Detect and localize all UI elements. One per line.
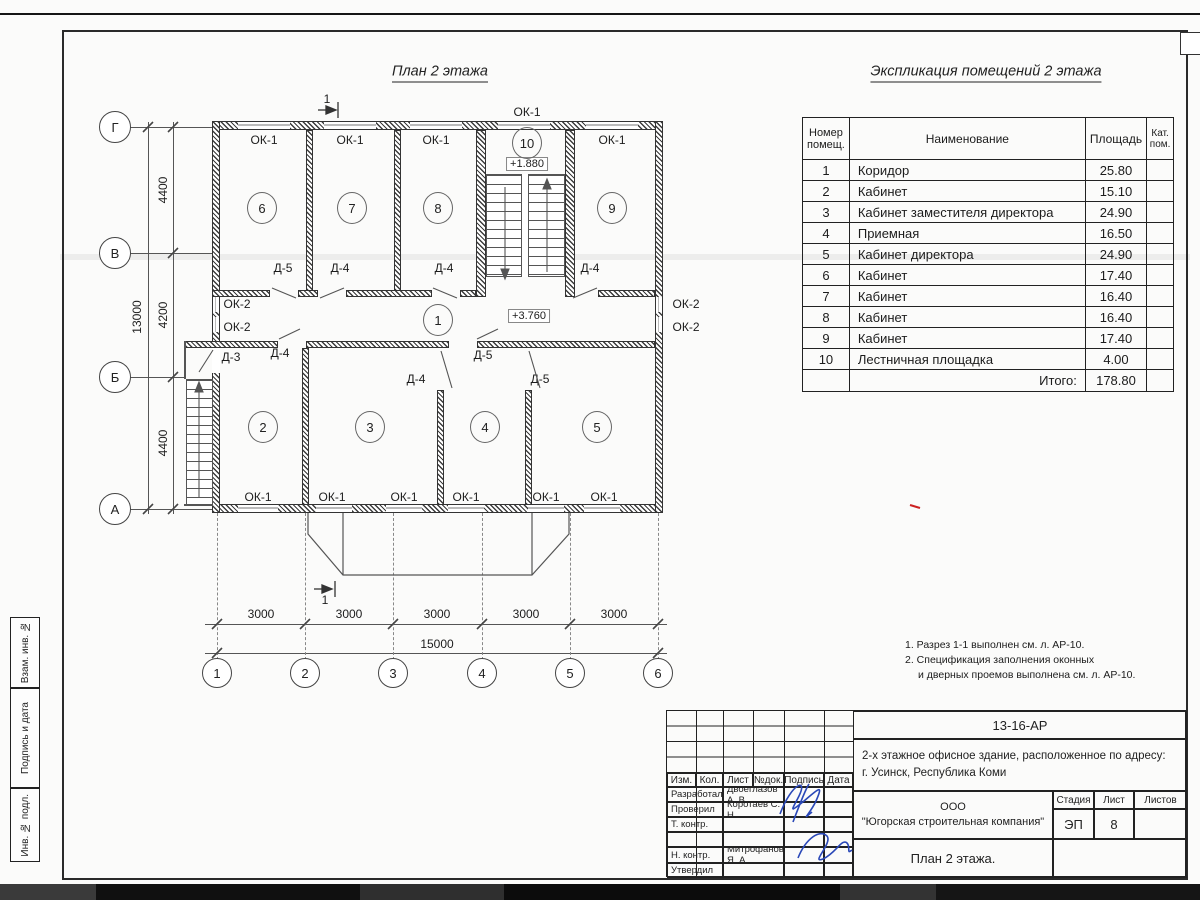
room-number-bubble: 3 bbox=[355, 411, 385, 443]
tb-name: Двоеглазов А. В. bbox=[723, 787, 784, 802]
plan-label: ОК-2 bbox=[224, 297, 251, 311]
tb-description-line1: 2-х этажное офисное здание, расположенно… bbox=[862, 748, 1166, 765]
cell-area: 4.00 bbox=[1085, 349, 1146, 370]
stamp-vzam-inv: Взам. инв. № bbox=[10, 617, 40, 688]
tb-col-data: Дата bbox=[824, 773, 853, 787]
table-row: 3Кабинет заместителя директора24.90 bbox=[803, 202, 1174, 223]
tb-date bbox=[824, 787, 853, 802]
axis-line-1 bbox=[217, 513, 218, 660]
table-row: 1Коридор25.80 bbox=[803, 160, 1174, 181]
tb-stage-value: ЭП bbox=[1053, 809, 1094, 839]
axis-bubble-bottom: 6 bbox=[643, 658, 673, 688]
plan-label: ОК-1 bbox=[245, 490, 272, 504]
drawing-sheet: Взам. инв. № Подпись и дата Инв. № подл.… bbox=[0, 0, 1200, 900]
plan-label: ОК-1 bbox=[533, 490, 560, 504]
plan-label: ОК-1 bbox=[423, 133, 450, 147]
table-row: 2Кабинет15.10 bbox=[803, 181, 1174, 202]
table-row: 8Кабинет16.40 bbox=[803, 307, 1174, 328]
cell-num: 1 bbox=[803, 160, 850, 181]
plan-label: ОК-2 bbox=[673, 297, 700, 311]
cell-area: 25.80 bbox=[1085, 160, 1146, 181]
table-total-row: Итого: 178.80 bbox=[803, 370, 1174, 392]
cell-cat bbox=[1147, 223, 1174, 244]
tb-date bbox=[824, 802, 853, 817]
tb-sign bbox=[784, 802, 824, 817]
total-value: 178.80 bbox=[1085, 370, 1146, 392]
corner-stamp-box bbox=[1180, 32, 1200, 55]
tb-col-izm: Изм. bbox=[667, 773, 696, 787]
tb-description: 2-х этажное офисное здание, расположенно… bbox=[862, 748, 1166, 783]
room-number-bubble: 4 bbox=[470, 411, 500, 443]
axis-bubble-left: А bbox=[99, 493, 131, 525]
tb-name bbox=[723, 817, 784, 832]
cell-name: Кабинет bbox=[849, 307, 1085, 328]
table-row: 4Приемная16.50 bbox=[803, 223, 1174, 244]
tb-role: Н. контр. bbox=[667, 847, 723, 863]
dim-line-bottom-total bbox=[205, 653, 667, 654]
tb-drawing-name: План 2 этажа. bbox=[853, 839, 1053, 878]
tb-doc-code: 13-16-АР bbox=[853, 711, 1187, 739]
note-2: 2. Спецификация заполнения оконных bbox=[905, 653, 1135, 668]
tb-date bbox=[824, 817, 853, 832]
cell-area: 16.40 bbox=[1085, 286, 1146, 307]
cell-cat bbox=[1147, 202, 1174, 223]
tb-company-line1: ООО bbox=[940, 800, 966, 815]
tb-sign bbox=[784, 863, 824, 878]
explication-table: Номер помещ. Наименование Площадь Кат. п… bbox=[802, 117, 1174, 392]
plan-label: Д-4 bbox=[271, 346, 290, 360]
cell-cat bbox=[1147, 286, 1174, 307]
dim-line-bottom-segments bbox=[205, 624, 667, 625]
plan-label: 3000 bbox=[248, 607, 275, 621]
cell-num: 6 bbox=[803, 265, 850, 286]
explication-title: Экспликация помещений 2 этажа bbox=[870, 64, 1101, 83]
tb-col-podpis: Подпись bbox=[784, 773, 824, 787]
cell-name: Кабинет директора bbox=[849, 244, 1085, 265]
plan-label: ОК-1 bbox=[319, 490, 346, 504]
wall-room6-7 bbox=[306, 130, 313, 291]
col-header-area: Площадь bbox=[1085, 118, 1146, 160]
axis-bubble-left: Б bbox=[99, 361, 131, 393]
tb-description-line2: г. Усинск, Республика Коми bbox=[862, 765, 1166, 782]
note-2-cont: и дверных проемов выполнена см. л. АР-10… bbox=[905, 668, 1135, 683]
wall-corridor-north bbox=[298, 290, 318, 297]
cell-cat bbox=[1147, 244, 1174, 265]
cell-area: 16.40 bbox=[1085, 307, 1146, 328]
room-number-bubble: 7 bbox=[337, 192, 367, 224]
tb-name: Коротаев С. Н. bbox=[723, 802, 784, 817]
tb-date bbox=[824, 847, 853, 863]
plan-label: Д-4 bbox=[581, 261, 600, 275]
cell-cat bbox=[1147, 181, 1174, 202]
window-ok1 bbox=[238, 121, 290, 130]
axis-line-6 bbox=[658, 513, 659, 660]
tb-stage-label: Стадия bbox=[1053, 791, 1094, 809]
wall-corridor-south bbox=[185, 341, 278, 348]
tb-role bbox=[667, 832, 723, 847]
plan-label: 3000 bbox=[513, 607, 540, 621]
external-stair-base bbox=[184, 504, 213, 506]
elevation-mark: +3.760 bbox=[508, 309, 550, 323]
note-1: 1. Разрез 1-1 выполнен см. л. АР-10. bbox=[905, 638, 1135, 653]
cell-area: 17.40 bbox=[1085, 265, 1146, 286]
window-ok1 bbox=[238, 504, 278, 513]
cell-num: 10 bbox=[803, 349, 850, 370]
cell-name: Приемная bbox=[849, 223, 1085, 244]
room-number-bubble: 6 bbox=[247, 192, 277, 224]
stamp-podpis-data-label: Подпись и дата bbox=[20, 702, 31, 774]
tb-date bbox=[824, 863, 853, 878]
cell-num: 5 bbox=[803, 244, 850, 265]
plan-label: ОК-1 bbox=[391, 490, 418, 504]
cell-num: 8 bbox=[803, 307, 850, 328]
tb-empty-cell bbox=[1053, 839, 1187, 878]
tb-name: Митрофанов Я. А. bbox=[723, 847, 784, 863]
tb-role: Проверил bbox=[667, 802, 723, 817]
wall-stair-west bbox=[476, 130, 486, 297]
wall-corridor-south bbox=[477, 341, 655, 348]
cell-num: 7 bbox=[803, 286, 850, 307]
cell-num: 3 bbox=[803, 202, 850, 223]
wall-room3-4 bbox=[437, 390, 444, 505]
dim-line-left-segments bbox=[173, 122, 174, 514]
cell-cat bbox=[1147, 160, 1174, 181]
col-header-name: Наименование bbox=[849, 118, 1085, 160]
cell-name: Кабинет bbox=[849, 181, 1085, 202]
table-row: 7Кабинет16.40 bbox=[803, 286, 1174, 307]
cell-cat bbox=[1147, 328, 1174, 349]
revision-grid bbox=[667, 711, 853, 773]
window-ok1 bbox=[584, 504, 620, 513]
plan-label: 3000 bbox=[336, 607, 363, 621]
scan-artifact-top bbox=[0, 13, 1200, 15]
table-row: 6Кабинет17.40 bbox=[803, 265, 1174, 286]
dim-line-left-total bbox=[148, 122, 149, 514]
tb-sign bbox=[784, 832, 824, 847]
tb-name bbox=[723, 832, 784, 847]
window-ok2 bbox=[655, 317, 663, 332]
tb-sheets-label: Листов bbox=[1134, 791, 1187, 809]
axis-line-4 bbox=[482, 513, 483, 660]
cell-area: 16.50 bbox=[1085, 223, 1146, 244]
plan-label: ОК-1 bbox=[591, 490, 618, 504]
cell-area: 15.10 bbox=[1085, 181, 1146, 202]
room-number-bubble: 8 bbox=[423, 192, 453, 224]
stairwell-stringer bbox=[521, 174, 529, 277]
external-stair bbox=[186, 379, 213, 505]
wall-stair-east bbox=[565, 130, 575, 297]
window-ok2 bbox=[212, 297, 220, 312]
dimension-label: 13000 bbox=[130, 300, 144, 333]
title-block: Изм. Кол. Лист №док. Подпись Дата Разраб… bbox=[666, 710, 1186, 877]
col-header-num: Номер помещ. bbox=[803, 118, 850, 160]
vestibule-wall bbox=[184, 341, 186, 379]
tb-sign bbox=[784, 787, 824, 802]
cell-cat bbox=[1147, 349, 1174, 370]
window-ok1 bbox=[448, 504, 484, 513]
plan-label: ОК-1 bbox=[337, 133, 364, 147]
axis-bubble-bottom: 1 bbox=[202, 658, 232, 688]
dimension-label: 4400 bbox=[156, 177, 170, 204]
tb-sheets-value bbox=[1134, 809, 1187, 839]
plan-label: 3000 bbox=[424, 607, 451, 621]
plan-label: ОК-1 bbox=[251, 133, 278, 147]
tb-date bbox=[824, 832, 853, 847]
wall-corridor-north bbox=[212, 290, 270, 297]
plan-label: 1 bbox=[322, 593, 329, 607]
dimension-label: 4200 bbox=[156, 302, 170, 329]
table-row: 5Кабинет директора24.90 bbox=[803, 244, 1174, 265]
plan-label: Д-4 bbox=[435, 261, 454, 275]
plan-label: ОК-2 bbox=[224, 320, 251, 334]
axis-line-g bbox=[128, 127, 212, 128]
plan-label: ОК-1 bbox=[453, 490, 480, 504]
room-number-bubble: 2 bbox=[248, 411, 278, 443]
door-opening-d3 bbox=[212, 347, 220, 373]
room-number-bubble: 1 bbox=[423, 304, 453, 336]
tb-role: Утвердил bbox=[667, 863, 723, 878]
window-ok1 bbox=[386, 504, 422, 513]
tb-col-list: Лист bbox=[723, 773, 753, 787]
plan-label: Д-3 bbox=[222, 350, 241, 364]
axis-bubble-bottom: 5 bbox=[555, 658, 585, 688]
cell-cat bbox=[1147, 265, 1174, 286]
notes: 1. Разрез 1-1 выполнен см. л. АР-10. 2. … bbox=[905, 638, 1135, 684]
window-ok1 bbox=[316, 504, 352, 513]
axis-line-2 bbox=[305, 513, 306, 660]
stamp-inv-podl-label: Инв. № подл. bbox=[20, 794, 31, 857]
plan-label: Д-5 bbox=[474, 348, 493, 362]
stamp-vzam-inv-label: Взам. инв. № bbox=[20, 621, 31, 683]
col-header-cat: Кат. пом. bbox=[1147, 118, 1174, 160]
axis-line-a bbox=[128, 509, 212, 510]
wall-corridor-north bbox=[598, 290, 655, 297]
table-row: 10Лестничная площадка4.00 bbox=[803, 349, 1174, 370]
room-number-bubble: 9 bbox=[597, 192, 627, 224]
axis-line-b bbox=[128, 377, 185, 378]
wall-corridor-north bbox=[346, 290, 432, 297]
cell-num: 4 bbox=[803, 223, 850, 244]
window-ok2 bbox=[655, 297, 663, 312]
tb-role: Разработал bbox=[667, 787, 723, 802]
plan-label: ОК-1 bbox=[514, 105, 541, 119]
window-ok1 bbox=[586, 121, 638, 130]
table-row: 9Кабинет17.40 bbox=[803, 328, 1174, 349]
plan-label: 3000 bbox=[601, 607, 628, 621]
tb-col-ndok: №док. bbox=[753, 773, 784, 787]
plan-label: ОК-1 bbox=[599, 133, 626, 147]
tb-col-kol: Кол. bbox=[696, 773, 723, 787]
total-cat-cell bbox=[1147, 370, 1174, 392]
wall-room4-5 bbox=[525, 390, 532, 505]
tb-sheet-label: Лист bbox=[1094, 791, 1134, 809]
axis-line-5 bbox=[570, 513, 571, 660]
scan-artifact-bottom bbox=[0, 884, 1200, 900]
cell-name: Кабинет bbox=[849, 265, 1085, 286]
plan-label: Д-5 bbox=[531, 372, 550, 386]
elevation-mark: +1.880 bbox=[506, 157, 548, 171]
axis-bubble-left: Г bbox=[99, 111, 131, 143]
window-ok2 bbox=[212, 317, 220, 332]
cell-num: 9 bbox=[803, 328, 850, 349]
cell-num: 2 bbox=[803, 181, 850, 202]
window-ok1 bbox=[324, 121, 376, 130]
wall-room2-3 bbox=[302, 348, 309, 505]
plan-label: 1 bbox=[324, 92, 331, 106]
plan-label: Д-4 bbox=[331, 261, 350, 275]
cell-name: Кабинет заместителя директора bbox=[849, 202, 1085, 223]
cell-area: 24.90 bbox=[1085, 202, 1146, 223]
room-number-bubble: 10 bbox=[512, 127, 542, 159]
stamp-podpis-data: Подпись и дата bbox=[10, 688, 40, 788]
tb-sheet-value: 8 bbox=[1094, 809, 1134, 839]
cell-name: Кабинет bbox=[849, 328, 1085, 349]
window-ok1 bbox=[528, 504, 564, 513]
axis-line-v bbox=[128, 253, 212, 254]
cell-cat bbox=[1147, 307, 1174, 328]
wall-room7-8 bbox=[394, 130, 401, 291]
tb-company-line2: "Югорская строительная компания" bbox=[862, 815, 1044, 830]
axis-bubble-left: В bbox=[99, 237, 131, 269]
cell-area: 24.90 bbox=[1085, 244, 1146, 265]
tb-role: Т. контр. bbox=[667, 817, 723, 832]
plan-title: План 2 этажа bbox=[392, 64, 488, 83]
total-empty-cell bbox=[803, 370, 850, 392]
cell-name: Кабинет bbox=[849, 286, 1085, 307]
cell-name: Лестничная площадка bbox=[849, 349, 1085, 370]
axis-bubble-bottom: 2 bbox=[290, 658, 320, 688]
room-number-bubble: 5 bbox=[582, 411, 612, 443]
tb-sign bbox=[784, 817, 824, 832]
axis-line-3 bbox=[393, 513, 394, 660]
window-ok1 bbox=[410, 121, 462, 130]
plan-label: Д-4 bbox=[407, 372, 426, 386]
dimension-label: 4400 bbox=[156, 430, 170, 457]
wall-corridor-south bbox=[306, 341, 449, 348]
total-label: Итого: bbox=[849, 370, 1085, 392]
tb-gridline bbox=[753, 711, 754, 773]
plan-label: Д-5 bbox=[274, 261, 293, 275]
plan-label: ОК-2 bbox=[673, 320, 700, 334]
cell-area: 17.40 bbox=[1085, 328, 1146, 349]
tb-sign bbox=[784, 847, 824, 863]
cell-name: Коридор bbox=[849, 160, 1085, 181]
tb-name bbox=[723, 863, 784, 878]
wall-corridor-north bbox=[460, 290, 476, 297]
axis-bubble-bottom: 4 bbox=[467, 658, 497, 688]
axis-bubble-bottom: 3 bbox=[378, 658, 408, 688]
stamp-inv-podl: Инв. № подл. bbox=[10, 788, 40, 862]
plan-label: 15000 bbox=[420, 637, 453, 651]
